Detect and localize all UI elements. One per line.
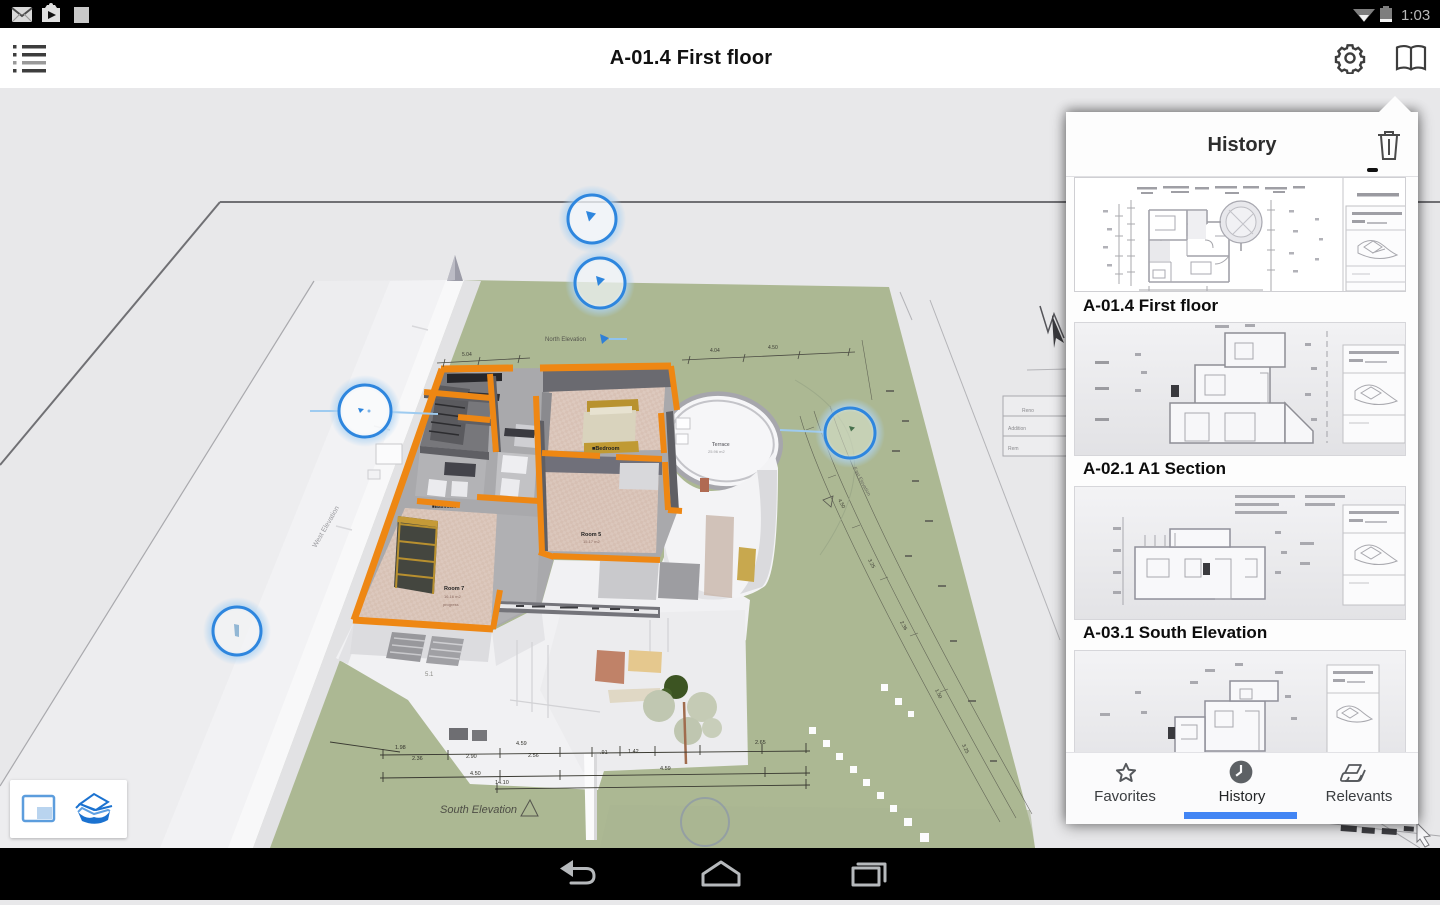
svg-text:5.1: 5.1	[425, 672, 434, 678]
svg-text:1:03: 1:03	[1401, 7, 1430, 24]
svg-text:15.17 m2: 15.17 m2	[583, 539, 600, 544]
svg-text:2.36: 2.36	[412, 756, 423, 762]
svg-text:1.42: 1.42	[628, 749, 639, 755]
svg-text:2.65: 2.65	[755, 740, 766, 746]
svg-text:5.04: 5.04	[462, 352, 472, 358]
svg-text:4.50: 4.50	[470, 771, 481, 777]
svg-text:Room 5: Room 5	[581, 532, 601, 538]
svg-text:North Elevation: North Elevation	[545, 337, 586, 343]
svg-text:2.56: 2.56	[528, 753, 539, 759]
svg-text:progress: progress	[443, 602, 459, 607]
svg-text:Reno: Reno	[1022, 408, 1034, 414]
svg-text:4.04: 4.04	[710, 348, 720, 354]
svg-text:Terrace: Terrace	[712, 442, 730, 448]
svg-text:4.59: 4.59	[516, 741, 527, 747]
svg-text:Addition: Addition	[1008, 426, 1026, 432]
svg-text:Room 7: Room 7	[444, 586, 464, 592]
svg-text:16.16 m2: 16.16 m2	[444, 594, 461, 599]
svg-text:4.50: 4.50	[768, 345, 778, 351]
svg-text:■Bedroom: ■Bedroom	[592, 446, 620, 452]
svg-text:2.90: 2.90	[466, 754, 477, 760]
svg-text:South Elevation: South Elevation	[440, 804, 517, 816]
svg-text:Rem: Rem	[1008, 446, 1019, 452]
svg-text:1.98: 1.98	[395, 745, 406, 751]
svg-text:.91: .91	[600, 750, 608, 756]
svg-text:25.96 m2: 25.96 m2	[708, 449, 725, 454]
svg-text:14.10: 14.10	[495, 780, 509, 786]
svg-text:4.59: 4.59	[660, 766, 671, 772]
